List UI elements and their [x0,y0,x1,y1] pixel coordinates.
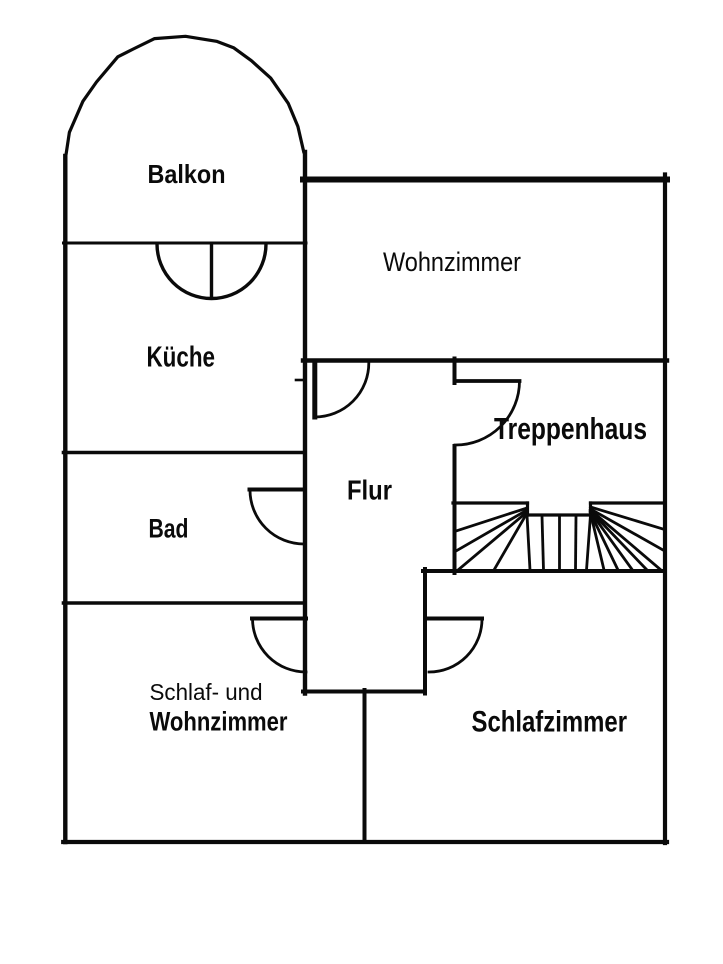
svg-text:Treppenhaus: Treppenhaus [494,411,647,446]
svg-text:Bad: Bad [149,514,189,544]
svg-text:Flur: Flur [347,475,392,506]
svg-text:Balkon: Balkon [148,159,226,189]
svg-text:Schlaf- und: Schlaf- und [150,679,263,705]
svg-text:Küche: Küche [147,342,216,374]
svg-text:Wohnzimmer: Wohnzimmer [383,247,521,277]
svg-text:Schlafzimmer: Schlafzimmer [472,706,628,739]
svg-text:Wohnzimmer: Wohnzimmer [150,707,288,737]
